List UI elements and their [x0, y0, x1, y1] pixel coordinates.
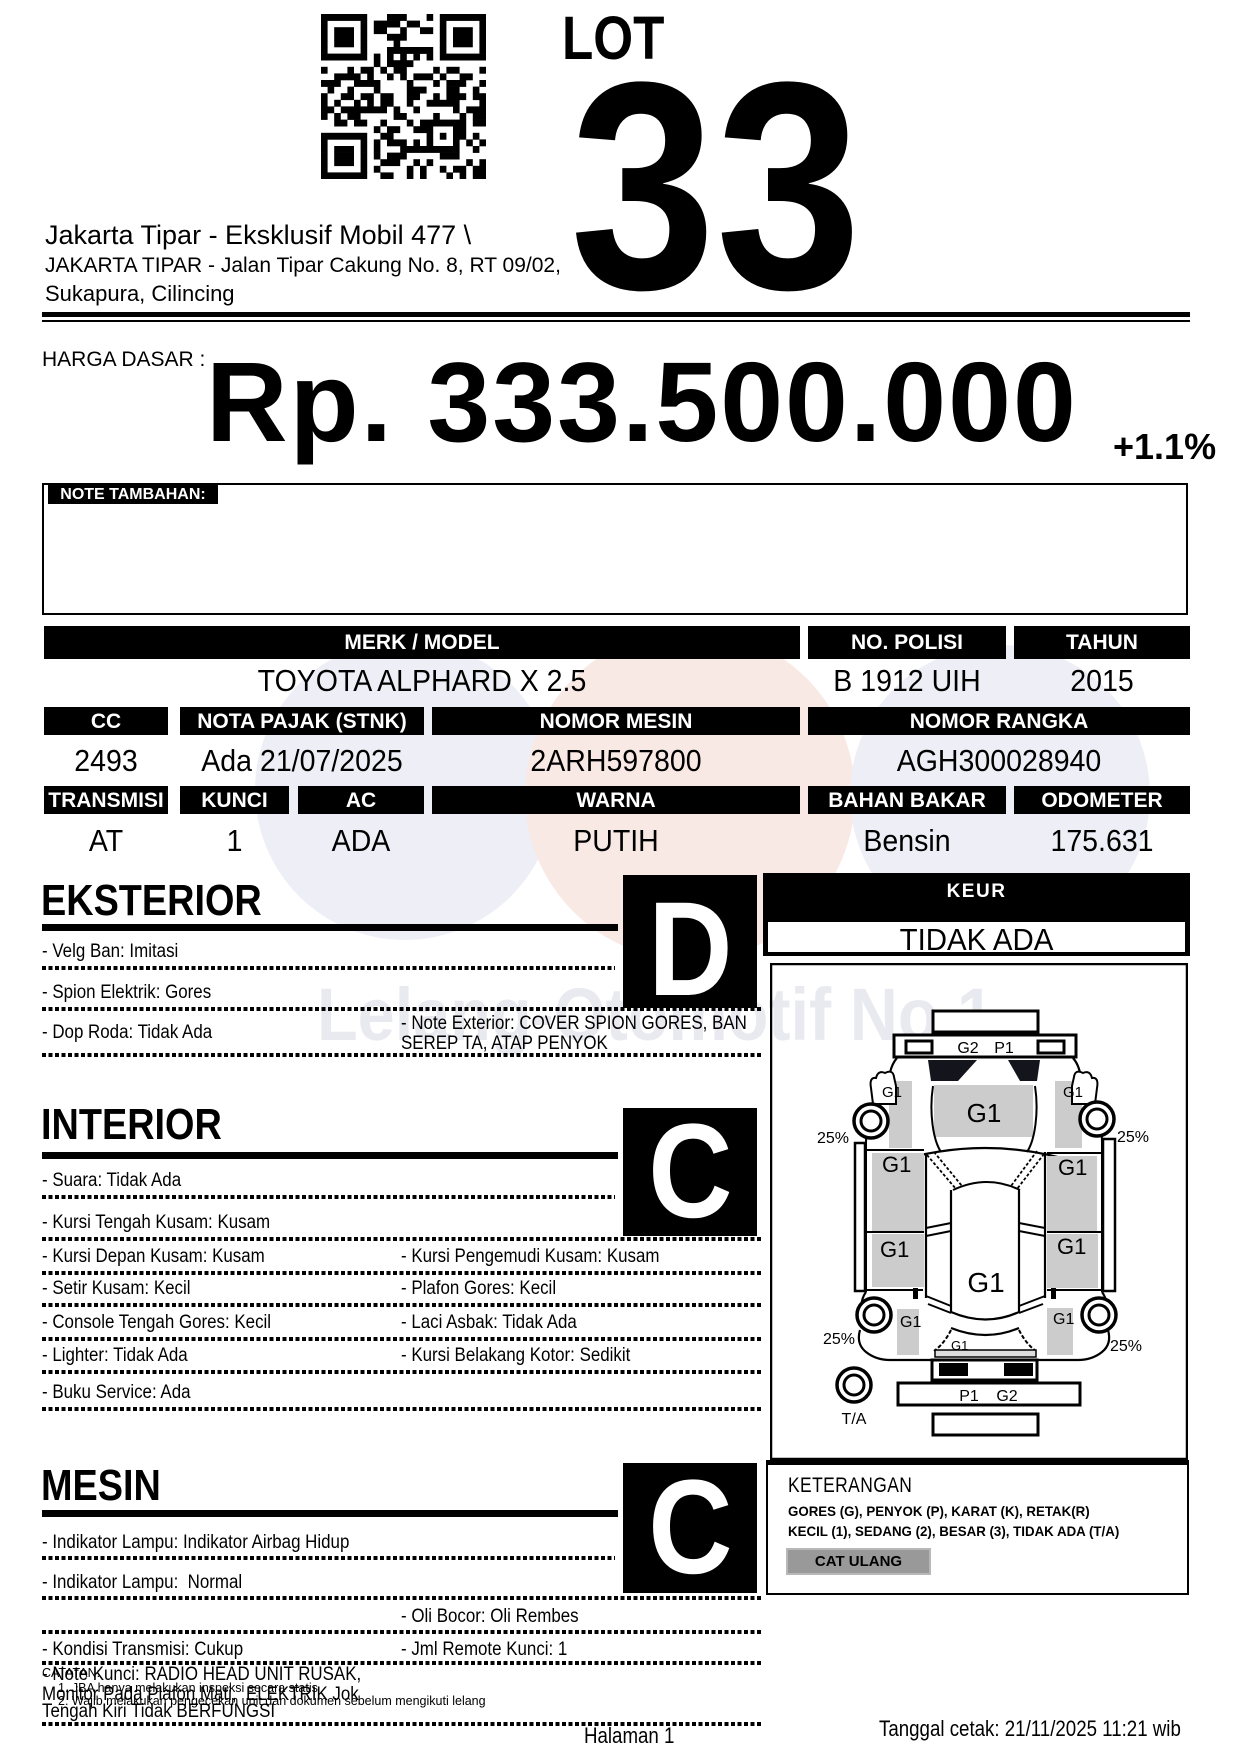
svg-text:G1: G1	[967, 1098, 1002, 1128]
svg-text:25%: 25%	[817, 1130, 849, 1147]
svg-text:25%: 25%	[1117, 1129, 1149, 1146]
svg-text:G1: G1	[900, 1314, 921, 1331]
svg-text:P1: P1	[994, 1040, 1014, 1057]
svg-text:G1: G1	[1058, 1155, 1087, 1180]
svg-text:25%: 25%	[1110, 1338, 1142, 1355]
svg-text:25%: 25%	[823, 1331, 855, 1348]
svg-text:G1: G1	[882, 1084, 902, 1101]
svg-text:G1: G1	[880, 1237, 909, 1262]
svg-text:P1: P1	[959, 1388, 979, 1405]
svg-text:T/A: T/A	[842, 1411, 867, 1428]
svg-text:G1: G1	[882, 1152, 911, 1177]
svg-text:G2: G2	[957, 1040, 978, 1057]
svg-text:G1: G1	[1063, 1084, 1083, 1101]
svg-text:G1: G1	[951, 1338, 968, 1353]
svg-text:G1: G1	[1057, 1234, 1086, 1259]
svg-text:G2: G2	[996, 1388, 1017, 1405]
svg-text:G1: G1	[1053, 1311, 1074, 1328]
svg-text:G1: G1	[967, 1267, 1004, 1298]
